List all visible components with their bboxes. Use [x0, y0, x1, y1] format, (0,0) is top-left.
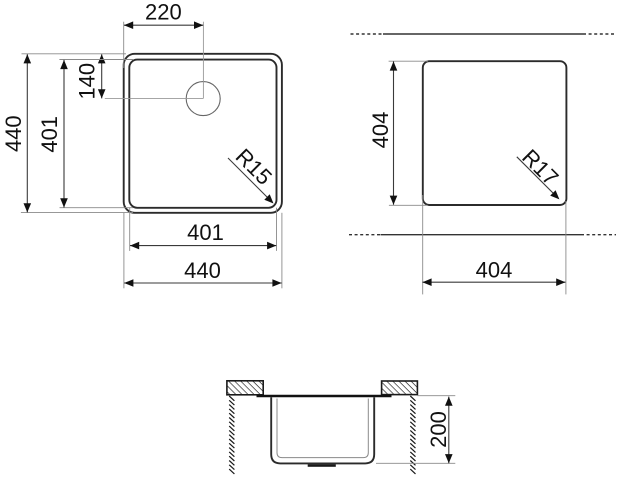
- svg-text:401: 401: [187, 220, 224, 245]
- svg-text:404: 404: [476, 258, 513, 283]
- svg-text:R17: R17: [517, 144, 563, 190]
- svg-text:440: 440: [184, 258, 221, 283]
- svg-text:140: 140: [74, 63, 99, 100]
- svg-text:440: 440: [1, 115, 26, 152]
- svg-text:200: 200: [426, 411, 451, 448]
- svg-text:R15: R15: [231, 144, 277, 190]
- svg-text:404: 404: [368, 112, 393, 149]
- svg-text:220: 220: [145, 0, 182, 25]
- svg-text:401: 401: [37, 116, 62, 153]
